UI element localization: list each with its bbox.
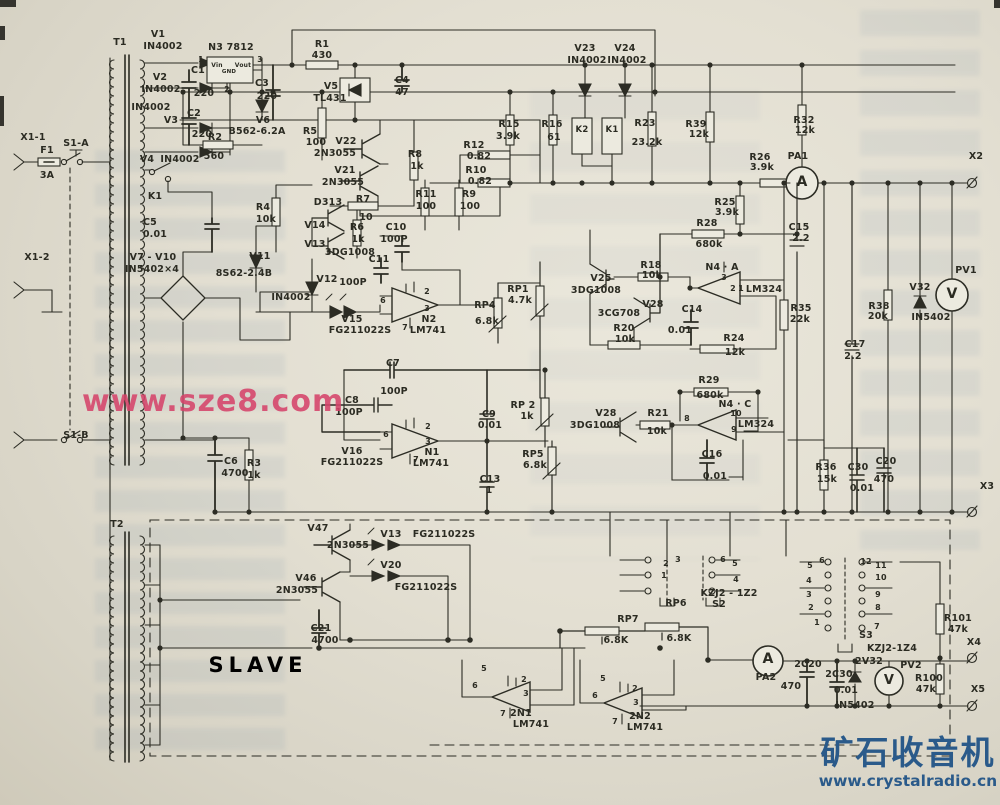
component-label: 2.2 (792, 234, 809, 244)
component-label: 47 (395, 88, 409, 98)
component-label: PV1 (955, 266, 977, 276)
component-label: R101 (944, 614, 972, 624)
component-label: C20 (876, 457, 897, 467)
component-label: 2 (808, 604, 814, 612)
component-label: 470 (781, 682, 801, 692)
component-label: V24 (614, 44, 635, 54)
component-label: 680k (696, 240, 723, 250)
component-label: R23 (634, 119, 655, 129)
component-label: N2 (422, 315, 437, 325)
component-label: 1 (198, 56, 203, 64)
component-label: 20k (868, 312, 888, 322)
component-label: 2 (424, 288, 430, 296)
component-label: R16 (541, 120, 562, 130)
component-label: 3 (721, 274, 727, 282)
component-label: R1 (315, 40, 329, 50)
component-label: 5 (807, 562, 813, 570)
component-label: IN4002 (607, 56, 646, 66)
component-label: S3 (859, 631, 873, 641)
sze8-watermark: www.sze8.com (82, 384, 344, 419)
component-label: V (884, 674, 894, 687)
component-label: 1 (738, 285, 744, 293)
component-label: 1 (661, 572, 667, 580)
component-label: 15k (817, 475, 837, 485)
component-label: C8 (345, 396, 359, 406)
component-label: 6 (819, 557, 825, 565)
component-label: RP5 (522, 450, 544, 460)
component-label: V13 (380, 530, 401, 540)
component-label: V7 - V10 (130, 253, 177, 263)
component-label: 0.01 (834, 686, 858, 696)
component-label: R7 (356, 195, 370, 205)
component-label: IN5402 (835, 701, 874, 711)
component-label: X3 (980, 482, 994, 492)
component-label: 4.7k (508, 296, 532, 306)
component-label: 6 (720, 556, 726, 564)
component-label: 3DG1008 (571, 286, 621, 296)
component-label: 430 (312, 51, 332, 61)
component-label: 10 (875, 574, 887, 582)
component-label: C16 (702, 450, 723, 460)
component-label: 4700 (221, 469, 248, 479)
component-label: 10k (256, 215, 276, 225)
component-label: 100P (380, 235, 408, 245)
component-label: IN5402 (911, 313, 950, 323)
component-label: 470 (874, 475, 894, 485)
component-label: 1k (247, 471, 260, 481)
component-label: 100 (306, 138, 326, 148)
component-label: V6 (256, 116, 270, 126)
component-label: 6.8K (667, 634, 692, 644)
component-label: 3.9k (715, 208, 739, 218)
component-label: 100 (416, 202, 436, 212)
component-label: 4 (806, 577, 812, 585)
component-label: 8S62-2.4B (216, 269, 273, 279)
component-label: 8 (684, 415, 690, 423)
component-label: 100 (460, 202, 480, 212)
component-label: TL431 (313, 94, 346, 104)
component-label: F1 (40, 146, 54, 156)
component-label: 0.01 (143, 230, 167, 240)
component-label: 3 (633, 699, 639, 707)
component-label: V5 (324, 82, 338, 92)
component-label: 1 (814, 619, 820, 627)
component-label: V2 (153, 73, 167, 83)
component-label: 2N3055 (276, 586, 318, 596)
component-label: 2V32 (855, 657, 883, 667)
component-label: 4700 (311, 636, 338, 646)
component-label: V13 (304, 240, 325, 250)
component-label: 10k (647, 427, 667, 437)
component-label: S1-A (63, 139, 89, 149)
component-label: 3 (425, 438, 431, 446)
component-label: IN4002 (143, 42, 182, 52)
component-label: 47k (948, 625, 968, 635)
component-label: 1 (486, 486, 493, 496)
component-label: 6 (383, 431, 389, 439)
component-label: R12 (463, 141, 484, 151)
component-label: K2 (576, 126, 589, 135)
component-label: R35 (790, 304, 811, 314)
component-label: R4 (256, 203, 270, 213)
crystalradio-url: www.crystalradio.cn (818, 772, 998, 790)
component-label: 0.01 (668, 326, 692, 336)
component-label: RP1 (507, 285, 529, 295)
component-label: C21 (311, 624, 332, 634)
component-label: 12 (860, 558, 872, 566)
component-label: C9 (482, 410, 496, 420)
component-label: V46 (295, 574, 316, 584)
component-label: 7 (500, 710, 506, 718)
component-label: 2 (663, 560, 669, 568)
component-label: 10k (615, 335, 635, 345)
component-label: IN5402×4 (125, 265, 179, 275)
component-label: 2C20 (794, 660, 822, 670)
component-label: LM324 (746, 285, 782, 295)
component-label: RP7 (617, 615, 639, 625)
component-label: IN4002 (141, 85, 180, 95)
component-label: V15 (341, 315, 362, 325)
component-label: R28 (696, 219, 717, 229)
component-label: 2N1 (510, 709, 532, 719)
component-label: 2C30 (825, 670, 853, 680)
component-label: K1 (148, 192, 162, 202)
component-label: RP4 (474, 301, 496, 311)
component-label: 5 (600, 675, 606, 683)
component-label: 9 (875, 591, 881, 599)
component-label: R36 (815, 463, 836, 473)
component-label: 3 (675, 556, 681, 564)
component-label: V11 (249, 252, 270, 262)
component-label: C3 (255, 79, 269, 89)
component-label: R6 (350, 223, 364, 233)
component-label: 22k (790, 315, 810, 325)
component-label: 560 (204, 152, 224, 162)
slave-section-label: SLAVE (209, 655, 308, 676)
component-label: 220 (257, 92, 277, 102)
component-label: 0.01 (478, 421, 502, 431)
component-label: N3 7812 (208, 43, 254, 53)
component-label: R100 (915, 674, 943, 684)
component-label: 0.82 (468, 177, 492, 187)
scanned-schematic-page: T1V1IN4002V2IN4002IN4002V3C1220C2220N3 7… (0, 0, 1000, 805)
component-label: T1 (113, 38, 127, 48)
component-label: R24 (723, 334, 744, 344)
component-label: GND (222, 70, 236, 76)
component-label: 3.9k (496, 132, 520, 142)
component-label: 7 (612, 718, 618, 726)
component-label: N4 · A (705, 263, 738, 273)
component-label: 0.82 (467, 152, 491, 162)
component-label: 1k (351, 235, 364, 245)
component-label: C14 (682, 305, 703, 315)
component-label: X5 (971, 685, 985, 695)
component-label: 2N3055 (327, 541, 369, 551)
component-label: PA1 (788, 152, 809, 162)
component-label: 2N3055 (322, 178, 364, 188)
component-label: R15 (498, 120, 519, 130)
component-label: X1-1 (20, 133, 45, 143)
component-label: N1 (425, 448, 440, 458)
component-label: C6 (224, 457, 238, 467)
component-label: IN4002 (131, 103, 170, 113)
component-label: V1 (151, 30, 165, 40)
component-label: C2 (187, 109, 201, 119)
component-label: A (796, 175, 807, 189)
component-label: LM324 (738, 420, 774, 430)
component-label: 3DG1008 (570, 421, 620, 431)
component-label: R2 (208, 133, 222, 143)
component-label: V3 (164, 116, 178, 126)
component-label: T2 (110, 520, 124, 530)
component-label: R11 (415, 190, 436, 200)
component-label: 47k (916, 685, 936, 695)
component-label: 2 (730, 285, 736, 293)
component-label: R20 (613, 324, 634, 334)
component-label: V4 (140, 155, 154, 165)
component-label: R10 (465, 166, 486, 176)
component-label: C1 (191, 66, 205, 76)
component-label: Vout (235, 63, 251, 69)
crystalradio-watermark: 矿石收音机 www.crystalradio.cn (818, 736, 998, 790)
component-label: C30 (848, 463, 869, 473)
component-label: 2 (521, 676, 527, 684)
component-label: PA2 (756, 673, 777, 683)
crystalradio-title: 矿石收音机 (818, 736, 998, 769)
component-label: FG211022S (395, 583, 458, 593)
component-label: 2 (224, 86, 229, 94)
component-label: KZJ2-1Z4 (867, 644, 917, 654)
component-label: 7 (402, 324, 408, 332)
component-label: 5 (732, 560, 738, 568)
component-label: 3A (40, 171, 54, 181)
component-label: V22 (335, 137, 356, 147)
component-label: X4 (967, 638, 981, 648)
component-label: 2N2 (629, 712, 651, 722)
component-label: C17 (845, 340, 866, 350)
component-label: 11 (875, 562, 887, 570)
component-label: V25 (590, 274, 611, 284)
component-label: K1 (606, 126, 619, 135)
component-label: V16 (341, 447, 362, 457)
component-label: 220 (194, 89, 214, 99)
component-label: 8 (875, 604, 881, 612)
component-label: LM741 (513, 720, 549, 730)
component-label: C11 (369, 255, 390, 265)
component-label: X2 (969, 152, 983, 162)
component-label: S1-B (63, 431, 88, 441)
component-label: V20 (380, 561, 401, 571)
component-label: S2 (712, 600, 726, 610)
component-label: 3 (523, 690, 529, 698)
component-label: R5 (303, 127, 317, 137)
component-label: 7 (874, 623, 880, 631)
component-label: C10 (386, 223, 407, 233)
component-label: IN4002 (160, 155, 199, 165)
component-label: 2 (632, 685, 638, 693)
component-label: 6.8K (604, 636, 629, 646)
component-label: V23 (574, 44, 595, 54)
component-label: 3CG708 (598, 309, 640, 319)
component-label: RP 2 (511, 401, 536, 411)
component-label: 12k (725, 348, 745, 358)
component-label: C13 (480, 475, 501, 485)
component-label: 12k (689, 130, 709, 140)
component-label: C15 (789, 223, 810, 233)
component-label: 10 (730, 410, 742, 418)
component-label: FG211022S (321, 458, 384, 468)
component-label: RP6 (665, 599, 687, 609)
component-label: 1k (410, 162, 423, 172)
component-label: PV2 (900, 661, 922, 671)
component-label: V14 (304, 221, 325, 231)
component-label: 23.2k (632, 138, 663, 148)
component-label: V47 (307, 524, 328, 534)
component-label: 2.2 (844, 352, 861, 362)
component-label: 4 (733, 576, 739, 584)
component-label: C7 (386, 359, 400, 369)
component-label: LM741 (410, 326, 446, 336)
component-label: 0.01 (703, 472, 727, 482)
component-label: 1k (520, 412, 533, 422)
component-label: V32 (909, 283, 930, 293)
component-label: D313 (314, 198, 343, 208)
component-label: R3 (247, 459, 261, 469)
component-label: FG211022S (329, 326, 392, 336)
component-label: R29 (698, 376, 719, 386)
component-label: C4 (395, 76, 409, 86)
component-label: 7 (413, 456, 419, 464)
component-label: IN4002 (567, 56, 606, 66)
component-label: 10k (642, 271, 662, 281)
component-label: V28 (595, 409, 616, 419)
component-label: 3DG1008 (325, 248, 375, 258)
component-label: 12k (795, 126, 815, 136)
component-label: 100P (339, 278, 367, 288)
component-label: 6.8k (475, 317, 499, 327)
component-label: 6 (592, 692, 598, 700)
component-label: KZJ2 - 1Z2 (700, 589, 757, 599)
component-label: 3.9k (750, 163, 774, 173)
component-label: 6 (472, 682, 478, 690)
component-label: V21 (334, 166, 355, 176)
component-label: 6.8k (523, 461, 547, 471)
component-label: 100P (380, 387, 408, 397)
component-label: V28 (642, 300, 663, 310)
component-label: 0.01 (850, 484, 874, 494)
component-label: X1-2 (24, 253, 49, 263)
component-label: 6 (380, 297, 386, 305)
component-label: R9 (462, 190, 476, 200)
component-label: R8 (408, 150, 422, 160)
component-label: R21 (647, 409, 668, 419)
component-label: 3 (257, 56, 262, 64)
component-label: 3 (806, 591, 812, 599)
component-label: 3 (424, 305, 430, 313)
component-label: 9 (731, 426, 737, 434)
component-label: 2 (425, 423, 431, 431)
component-label: 5 (481, 665, 487, 673)
component-label: B562-6.2A (229, 127, 286, 137)
component-label: A (762, 652, 773, 666)
component-label: V12 (316, 275, 337, 285)
component-label: 61 (547, 133, 561, 143)
component-label: LM741 (627, 723, 663, 733)
component-label: V (946, 287, 957, 301)
component-label: C5 (143, 218, 157, 228)
component-label: IN4002 (271, 293, 310, 303)
component-label: 2N3055 (314, 149, 356, 159)
component-label: FG211022S (413, 530, 476, 540)
